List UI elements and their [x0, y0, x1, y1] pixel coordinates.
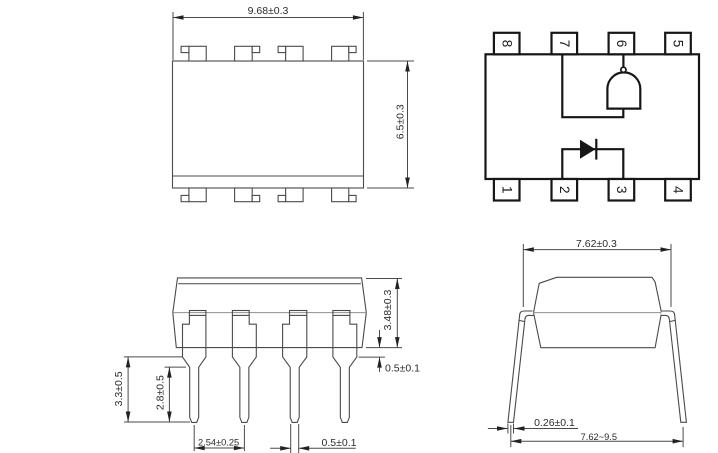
svg-text:7.62±0.3: 7.62±0.3 [576, 238, 617, 250]
svg-text:2.8±0.5: 2.8±0.5 [155, 375, 167, 410]
svg-text:3: 3 [614, 186, 629, 194]
svg-text:3.3±0.5: 3.3±0.5 [113, 371, 125, 406]
svg-text:0.5±0.1: 0.5±0.1 [322, 437, 357, 449]
svg-text:2.54±0.25: 2.54±0.25 [198, 437, 239, 447]
svg-text:4: 4 [671, 186, 686, 194]
svg-text:0.5±0.1: 0.5±0.1 [385, 362, 420, 374]
svg-text:5: 5 [671, 40, 686, 48]
svg-text:6: 6 [614, 40, 629, 48]
svg-text:6.5±0.3: 6.5±0.3 [395, 104, 407, 139]
svg-text:2: 2 [557, 186, 572, 194]
svg-text:9.68±0.3: 9.68±0.3 [248, 5, 289, 17]
svg-text:7.62~9.5: 7.62~9.5 [581, 432, 617, 442]
svg-text:3.48±0.3: 3.48±0.3 [382, 289, 394, 330]
svg-text:1: 1 [499, 186, 514, 194]
svg-text:8: 8 [499, 40, 514, 48]
svg-text:0.26±0.1: 0.26±0.1 [534, 417, 575, 429]
svg-text:7: 7 [557, 40, 572, 48]
